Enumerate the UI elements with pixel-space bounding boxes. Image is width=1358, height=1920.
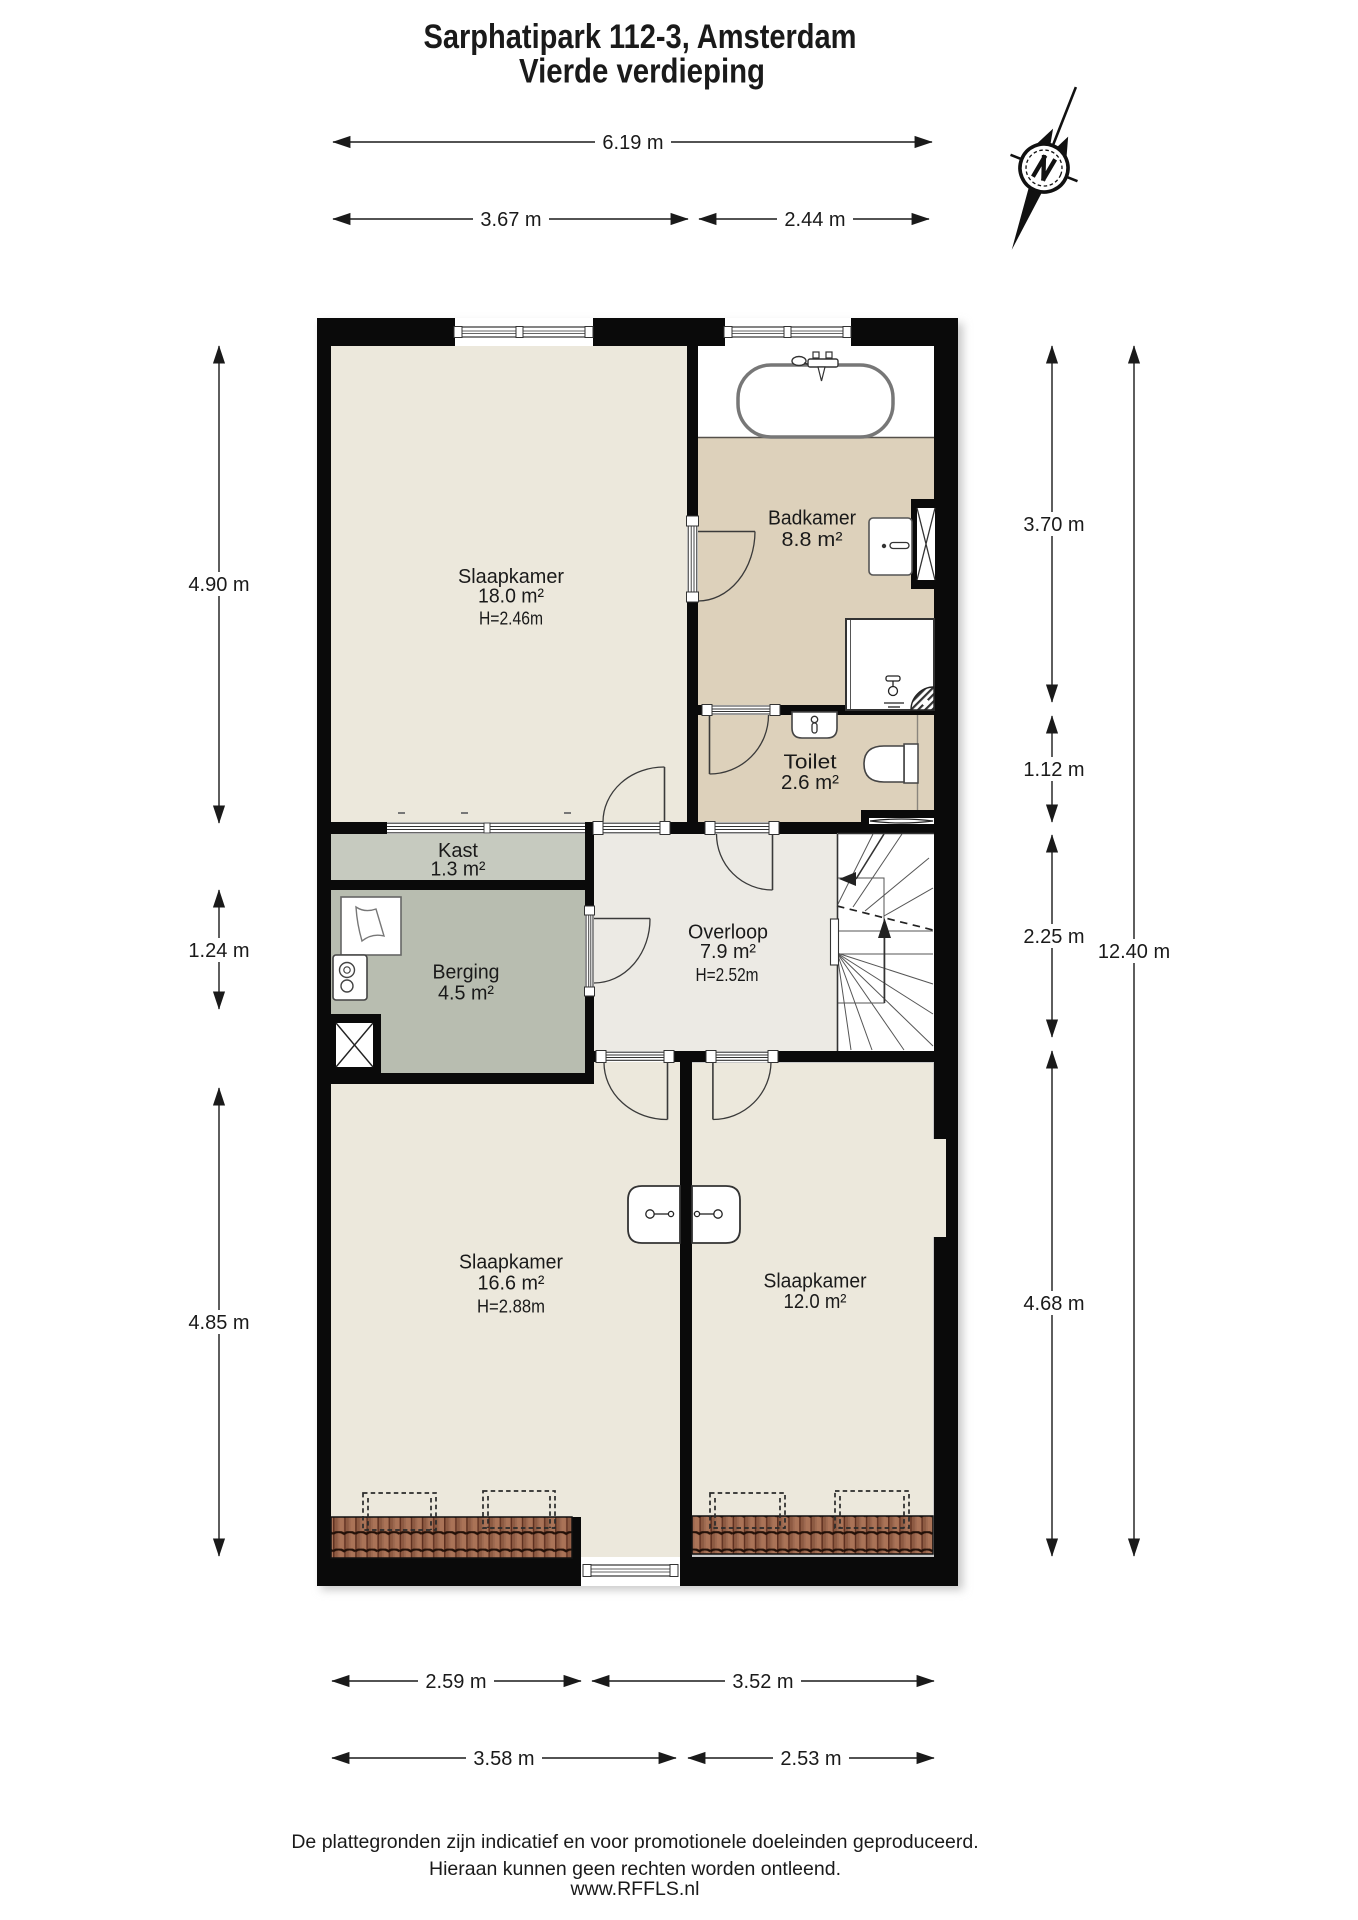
svg-text:Badkamer: Badkamer: [768, 507, 856, 530]
svg-text:Vierde verdieping: Vierde verdieping: [519, 53, 765, 91]
svg-text:2.44 m: 2.44 m: [784, 209, 845, 231]
svg-text:3.67 m: 3.67 m: [480, 209, 541, 231]
svg-text:Hieraan kunnen geen rechten wo: Hieraan kunnen geen rechten worden ontle…: [429, 1858, 841, 1880]
svg-text:8.8 m²: 8.8 m²: [782, 528, 843, 551]
svg-text:7.9 m²: 7.9 m²: [700, 940, 756, 963]
svg-text:www.RFFLS.nl: www.RFFLS.nl: [570, 1878, 700, 1900]
svg-text:2.25 m: 2.25 m: [1023, 926, 1084, 948]
svg-text:De plattegronden zijn indicati: De plattegronden zijn indicatief en voor…: [291, 1831, 978, 1853]
svg-text:3.52 m: 3.52 m: [732, 1671, 793, 1693]
svg-text:Berging: Berging: [433, 961, 500, 984]
svg-text:1.3 m²: 1.3 m²: [431, 858, 486, 881]
svg-text:1.24 m: 1.24 m: [188, 940, 249, 962]
svg-text:2.59 m: 2.59 m: [425, 1671, 486, 1693]
svg-text:2.53 m: 2.53 m: [780, 1748, 841, 1770]
svg-text:H=2.88m: H=2.88m: [477, 1297, 545, 1317]
svg-text:1.12 m: 1.12 m: [1023, 759, 1084, 781]
svg-text:4.5 m²: 4.5 m²: [438, 982, 494, 1005]
svg-text:4.68 m: 4.68 m: [1023, 1293, 1084, 1315]
svg-text:3.70 m: 3.70 m: [1023, 514, 1084, 536]
svg-text:16.6 m²: 16.6 m²: [478, 1272, 545, 1295]
svg-text:H=2.52m: H=2.52m: [696, 965, 759, 985]
svg-text:6.19 m: 6.19 m: [602, 132, 663, 154]
svg-text:3.58 m: 3.58 m: [473, 1748, 534, 1770]
svg-text:Slaapkamer: Slaapkamer: [459, 1251, 563, 1274]
svg-text:Sarphatipark 112-3, Amsterdam: Sarphatipark 112-3, Amsterdam: [424, 18, 857, 56]
svg-text:4.85 m: 4.85 m: [188, 1312, 249, 1334]
svg-text:12.0 m²: 12.0 m²: [784, 1290, 847, 1313]
svg-text:2.6 m²: 2.6 m²: [781, 771, 839, 794]
svg-text:4.90 m: 4.90 m: [188, 574, 249, 596]
svg-text:H=2.46m: H=2.46m: [479, 609, 543, 629]
svg-text:18.0 m²: 18.0 m²: [478, 585, 544, 608]
svg-text:12.40 m: 12.40 m: [1098, 941, 1170, 963]
